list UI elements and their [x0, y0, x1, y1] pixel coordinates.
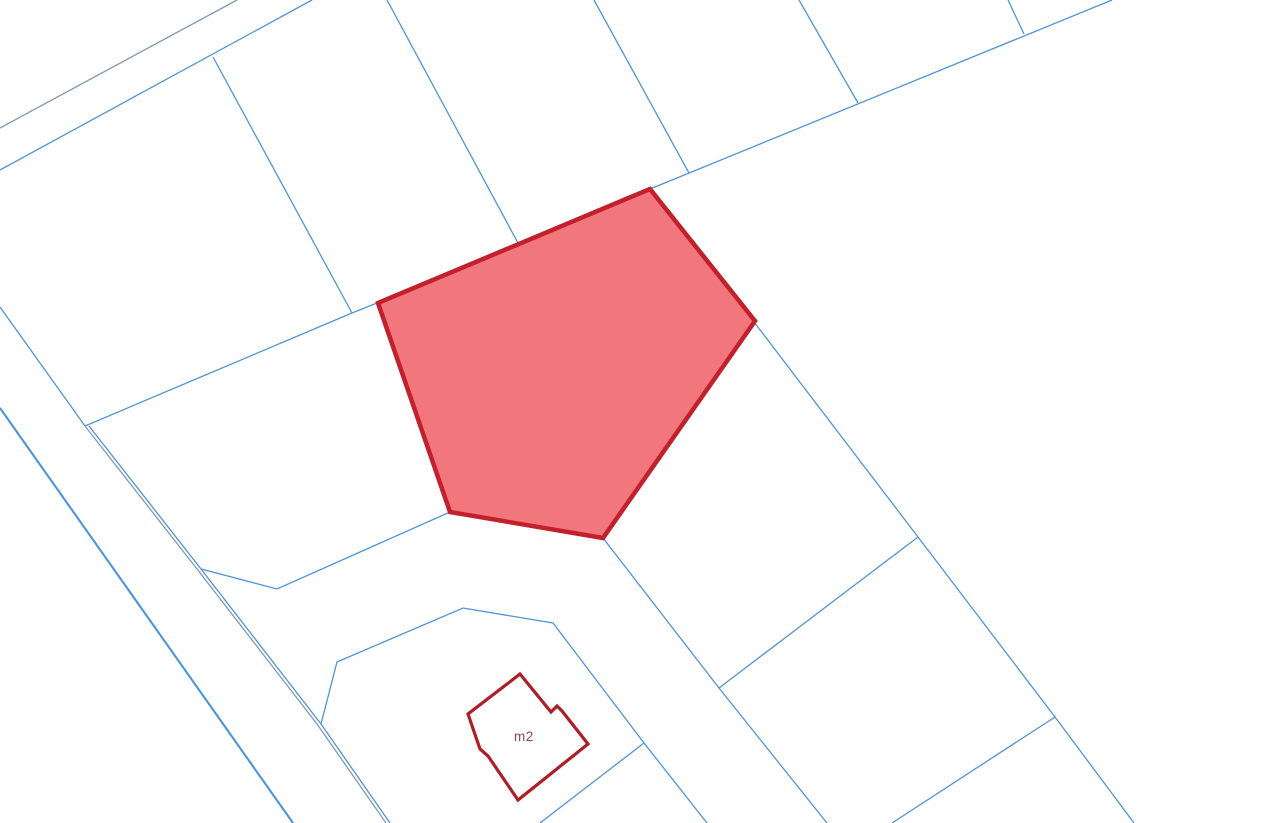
parcel-boundary-line-road-edge-far-left	[0, 408, 293, 823]
parcel-boundary-line-boundary-junction-cross	[719, 537, 918, 688]
parcel-boundary-line-boundary-east-descending	[918, 537, 1134, 823]
selected-parcel-highlight[interactable]	[378, 189, 755, 538]
parcel-boundary-line-parcel-boundary-long-ne	[650, 0, 1112, 189]
parcel-boundary-line-parcel-boundary-left-upper	[0, 307, 85, 426]
parcel-boundary-line-parcel-boundary-top-d	[1008, 0, 1024, 34]
parcel-boundary-line-parcel-boundary-to-parcel-corner	[85, 303, 377, 426]
parcel-boundary-line-road-edge-upper-left-inner	[0, 0, 312, 170]
cadastral-map-viewport[interactable]: m2	[0, 0, 1276, 823]
parcel-boundary-line-building-parcel-branch-sw	[540, 743, 644, 823]
parcel-boundary-line-boundary-road-to-parcel-sw-corner	[201, 512, 450, 589]
selected-parcel-layer	[378, 189, 755, 538]
building-area-label: m2	[514, 729, 534, 744]
parcel-boundary-line-parcel-boundary-nw-steep	[213, 57, 352, 313]
parcel-boundary-line-parcel-boundary-top-b	[594, 0, 689, 173]
parcel-boundary-line-boundary-from-parcel-south-vertex	[603, 538, 827, 823]
cadastral-map: m2	[0, 0, 1276, 823]
parcel-boundary-line-parcel-boundary-top-c	[799, 0, 858, 103]
parcel-boundary-line-parcel-boundary-top-a	[387, 0, 518, 243]
parcel-boundary-line-boundary-from-parcel-east-corner	[754, 322, 918, 537]
parcel-boundary-line-boundary-east-branch-sw	[892, 717, 1055, 823]
parcel-boundary-line-building-parcel-boundary	[321, 608, 707, 823]
parcel-boundary-line-road-edge-upper-left-outer	[0, 0, 237, 128]
parcel-boundary-line-road-pair-west-line	[85, 426, 386, 823]
